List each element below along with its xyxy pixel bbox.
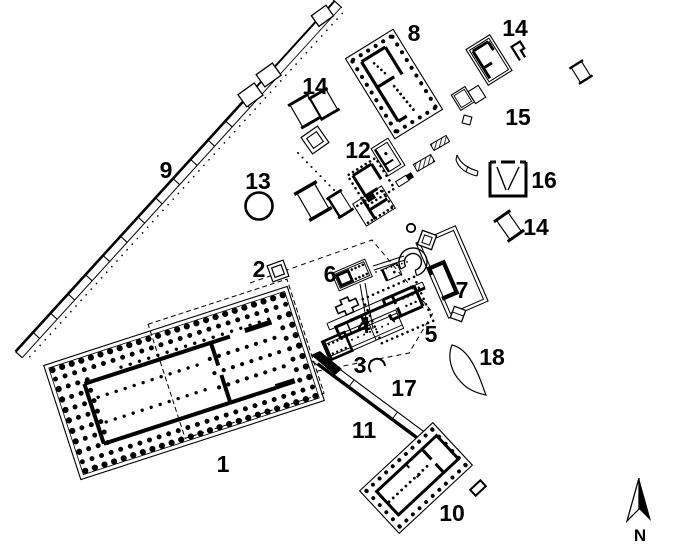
column-dot [301,157,303,159]
north-label: N [634,526,646,545]
column-dot [59,322,61,324]
column-dot [315,170,317,172]
north-arrow: N [627,478,651,545]
stoa-upper-end [333,0,342,8]
column-dot [295,63,297,65]
column-dot [111,265,113,267]
column-dot [336,18,338,20]
column-dot [162,209,164,211]
column-dot [280,80,282,82]
column-dot [75,305,77,307]
column-dot [414,300,417,303]
column-dot [131,243,133,245]
column-dot [321,35,323,37]
label-structure-15: 15 [505,104,531,130]
building-7 [429,262,457,299]
label-structure-18: 18 [479,344,505,370]
column-dot [126,249,128,251]
column-dot [381,325,384,328]
column-dot [391,188,395,192]
column-dot [228,136,230,138]
column-dot [141,232,143,234]
label-structure-2: 2 [253,256,266,282]
corner-base-south [450,306,465,321]
column-dot [193,175,195,177]
column-dot [274,85,276,87]
column-dot [233,130,235,132]
small-base [462,115,472,125]
column-dot [397,282,400,285]
column-dot [54,327,56,329]
temple-1 [42,279,327,480]
altar-by-temple-10 [470,480,486,495]
column-dot [411,328,414,331]
column-dot [324,180,326,182]
column-dot [328,184,330,186]
room [468,85,486,103]
site-plan-canvas: N 1 2 3 4 5 6 7 8 9 10 11 12 13 14 14 14… [0,0,680,552]
column-dot [409,302,412,305]
column-dot [223,142,225,144]
column-dot [366,295,369,298]
column-dot [333,189,335,191]
column-dot [357,191,361,195]
column-dot [375,330,378,333]
corner-base-north [417,230,436,249]
north-arrow-right [639,478,651,521]
column-dot [388,179,392,183]
label-structure-13: 13 [245,168,271,194]
column-dot [121,254,123,256]
outline [512,42,529,61]
column-dot [401,263,403,265]
column-dot [65,316,67,318]
column-dot [360,202,364,206]
column-dot [354,187,358,191]
column-dot [390,337,393,340]
column-dot [356,204,360,208]
small-monument-chair [512,42,529,61]
column-dot [375,328,378,331]
label-structure-17: 17 [391,375,417,401]
column-dot [172,198,174,200]
label-structure-5: 5 [425,321,438,347]
curved-wall-fragment [456,155,478,176]
stoa-9 [9,0,345,362]
hatched-wall [430,135,449,150]
label-structure-9: 9 [160,157,173,183]
wall [369,199,387,210]
exedra-outer [399,248,427,276]
column-dot [401,333,404,336]
column-dot [348,177,352,181]
column-dot [385,339,388,342]
column-dot [371,293,374,296]
column-dot [306,161,308,163]
column-dot [392,284,395,287]
column-dot [361,297,364,300]
cross-base [334,294,361,317]
base [301,126,329,154]
altar-near-13 [294,182,332,221]
column-dot [406,261,408,263]
column-dot [80,299,82,301]
altar-14-east [494,210,524,241]
base-with-block [396,172,414,187]
column-dot [39,344,41,346]
column-dot [326,29,328,31]
thick-walls [429,262,457,299]
column-dot [187,181,189,183]
label-structure-7: 7 [456,277,469,303]
column-dot [70,310,72,312]
column-dot [90,288,92,290]
label-structure-16: 16 [531,167,557,193]
label-structure-1: 1 [217,451,230,477]
column-dot [146,226,148,228]
column-dot [34,350,36,352]
column-dot [259,102,261,104]
column-dot [391,183,395,187]
end [327,324,330,330]
column-dot [420,292,423,295]
column-dot [167,204,169,206]
column-dot [370,201,374,205]
column-dot [331,23,333,25]
column-dot [254,108,256,110]
column-dot [297,152,299,154]
stoa-compartment-walls [33,102,250,339]
hatched-wall [413,155,434,172]
column-dot [85,294,87,296]
round-base-small [407,224,415,232]
label-structure-3: 3 [354,352,367,378]
column-dot [310,166,312,168]
column-dot [387,323,390,326]
column-dot [380,341,383,344]
column-dot [373,325,376,328]
column-dot [351,338,354,341]
column-dot [347,173,351,177]
column-dot [351,182,355,186]
label-structure-12: 12 [345,137,371,163]
column-dot [412,275,415,278]
exedra [399,248,427,276]
column-dot [269,91,271,93]
column-dot [116,260,118,262]
column-dot [290,69,292,71]
column-dot [152,220,154,222]
building-12-west-altar [326,189,354,219]
semicircle-17 [369,359,385,372]
base [417,230,436,249]
column-dot [379,195,383,199]
column-dot [375,271,377,273]
temple-8-stylobate [345,29,442,138]
column-dot [341,12,343,14]
wall [490,162,526,196]
column-dot [375,192,379,196]
stoa-end-wall [16,352,23,358]
stoa-upper-front [259,7,341,97]
building-15 [451,80,485,112]
gate-2 [267,260,289,282]
label-structure-4: 4 [358,312,371,338]
label-structure-8: 8 [408,20,421,46]
column-dot [405,304,408,307]
building-6 [332,259,373,291]
column-dot [300,57,302,59]
building-14-north [466,35,512,85]
label-structure-14-east: 14 [523,214,549,240]
column-dot [264,97,266,99]
column-dot [416,326,419,329]
column-dot [315,40,317,42]
column-dot [95,282,97,284]
column-dot [182,187,184,189]
column-dot [387,190,391,194]
round-monument-13 [246,193,273,220]
column-dot [49,333,51,335]
column-dot [244,119,246,121]
column-dot [285,74,287,76]
base [267,260,289,282]
label-structure-10: 10 [439,500,465,526]
column-dot [372,157,376,161]
column-dot [157,215,159,217]
column-dot [376,291,379,294]
site-plan-page: N 1 2 3 4 5 6 7 8 9 10 11 12 13 14 14 14… [0,0,680,552]
column-dot [407,277,410,280]
column-dot [392,270,396,274]
column-dot [177,192,179,194]
column-dot [203,164,205,166]
column-dot [29,355,31,357]
column-dot [213,153,215,155]
column-dot [249,114,251,116]
inner-line [508,167,519,190]
column-dot [406,330,409,333]
plan-root: N 1 2 3 4 5 6 7 8 9 10 11 12 13 14 14 14… [9,0,651,545]
label-structure-6: 6 [324,261,337,287]
column-dot [375,198,379,202]
column-dot [396,335,399,338]
label-structure-11: 11 [352,417,377,443]
column-dot [106,271,108,273]
wall [382,270,387,281]
column-dot [387,286,390,289]
altar-northeast [569,60,592,84]
column-dot [319,175,321,177]
column-dot [208,159,210,161]
exedra-end [415,270,416,275]
label-structure-14-west: 14 [302,73,328,99]
column-dot [310,46,312,48]
column-dot [198,170,200,172]
column-dot [44,339,46,341]
monument-base-square [301,126,329,154]
temple-8 [345,29,442,138]
column-dot [218,147,220,149]
column-dot [305,52,307,54]
column-dot [239,125,241,127]
column-dot [136,237,138,239]
column-dot [382,289,385,292]
north-arrow-left [627,478,639,521]
inner-line [497,167,506,190]
structure-16-square [490,162,526,196]
label-structure-14-north: 14 [502,15,528,41]
column-dot [100,277,102,279]
exedra-end [401,266,406,269]
